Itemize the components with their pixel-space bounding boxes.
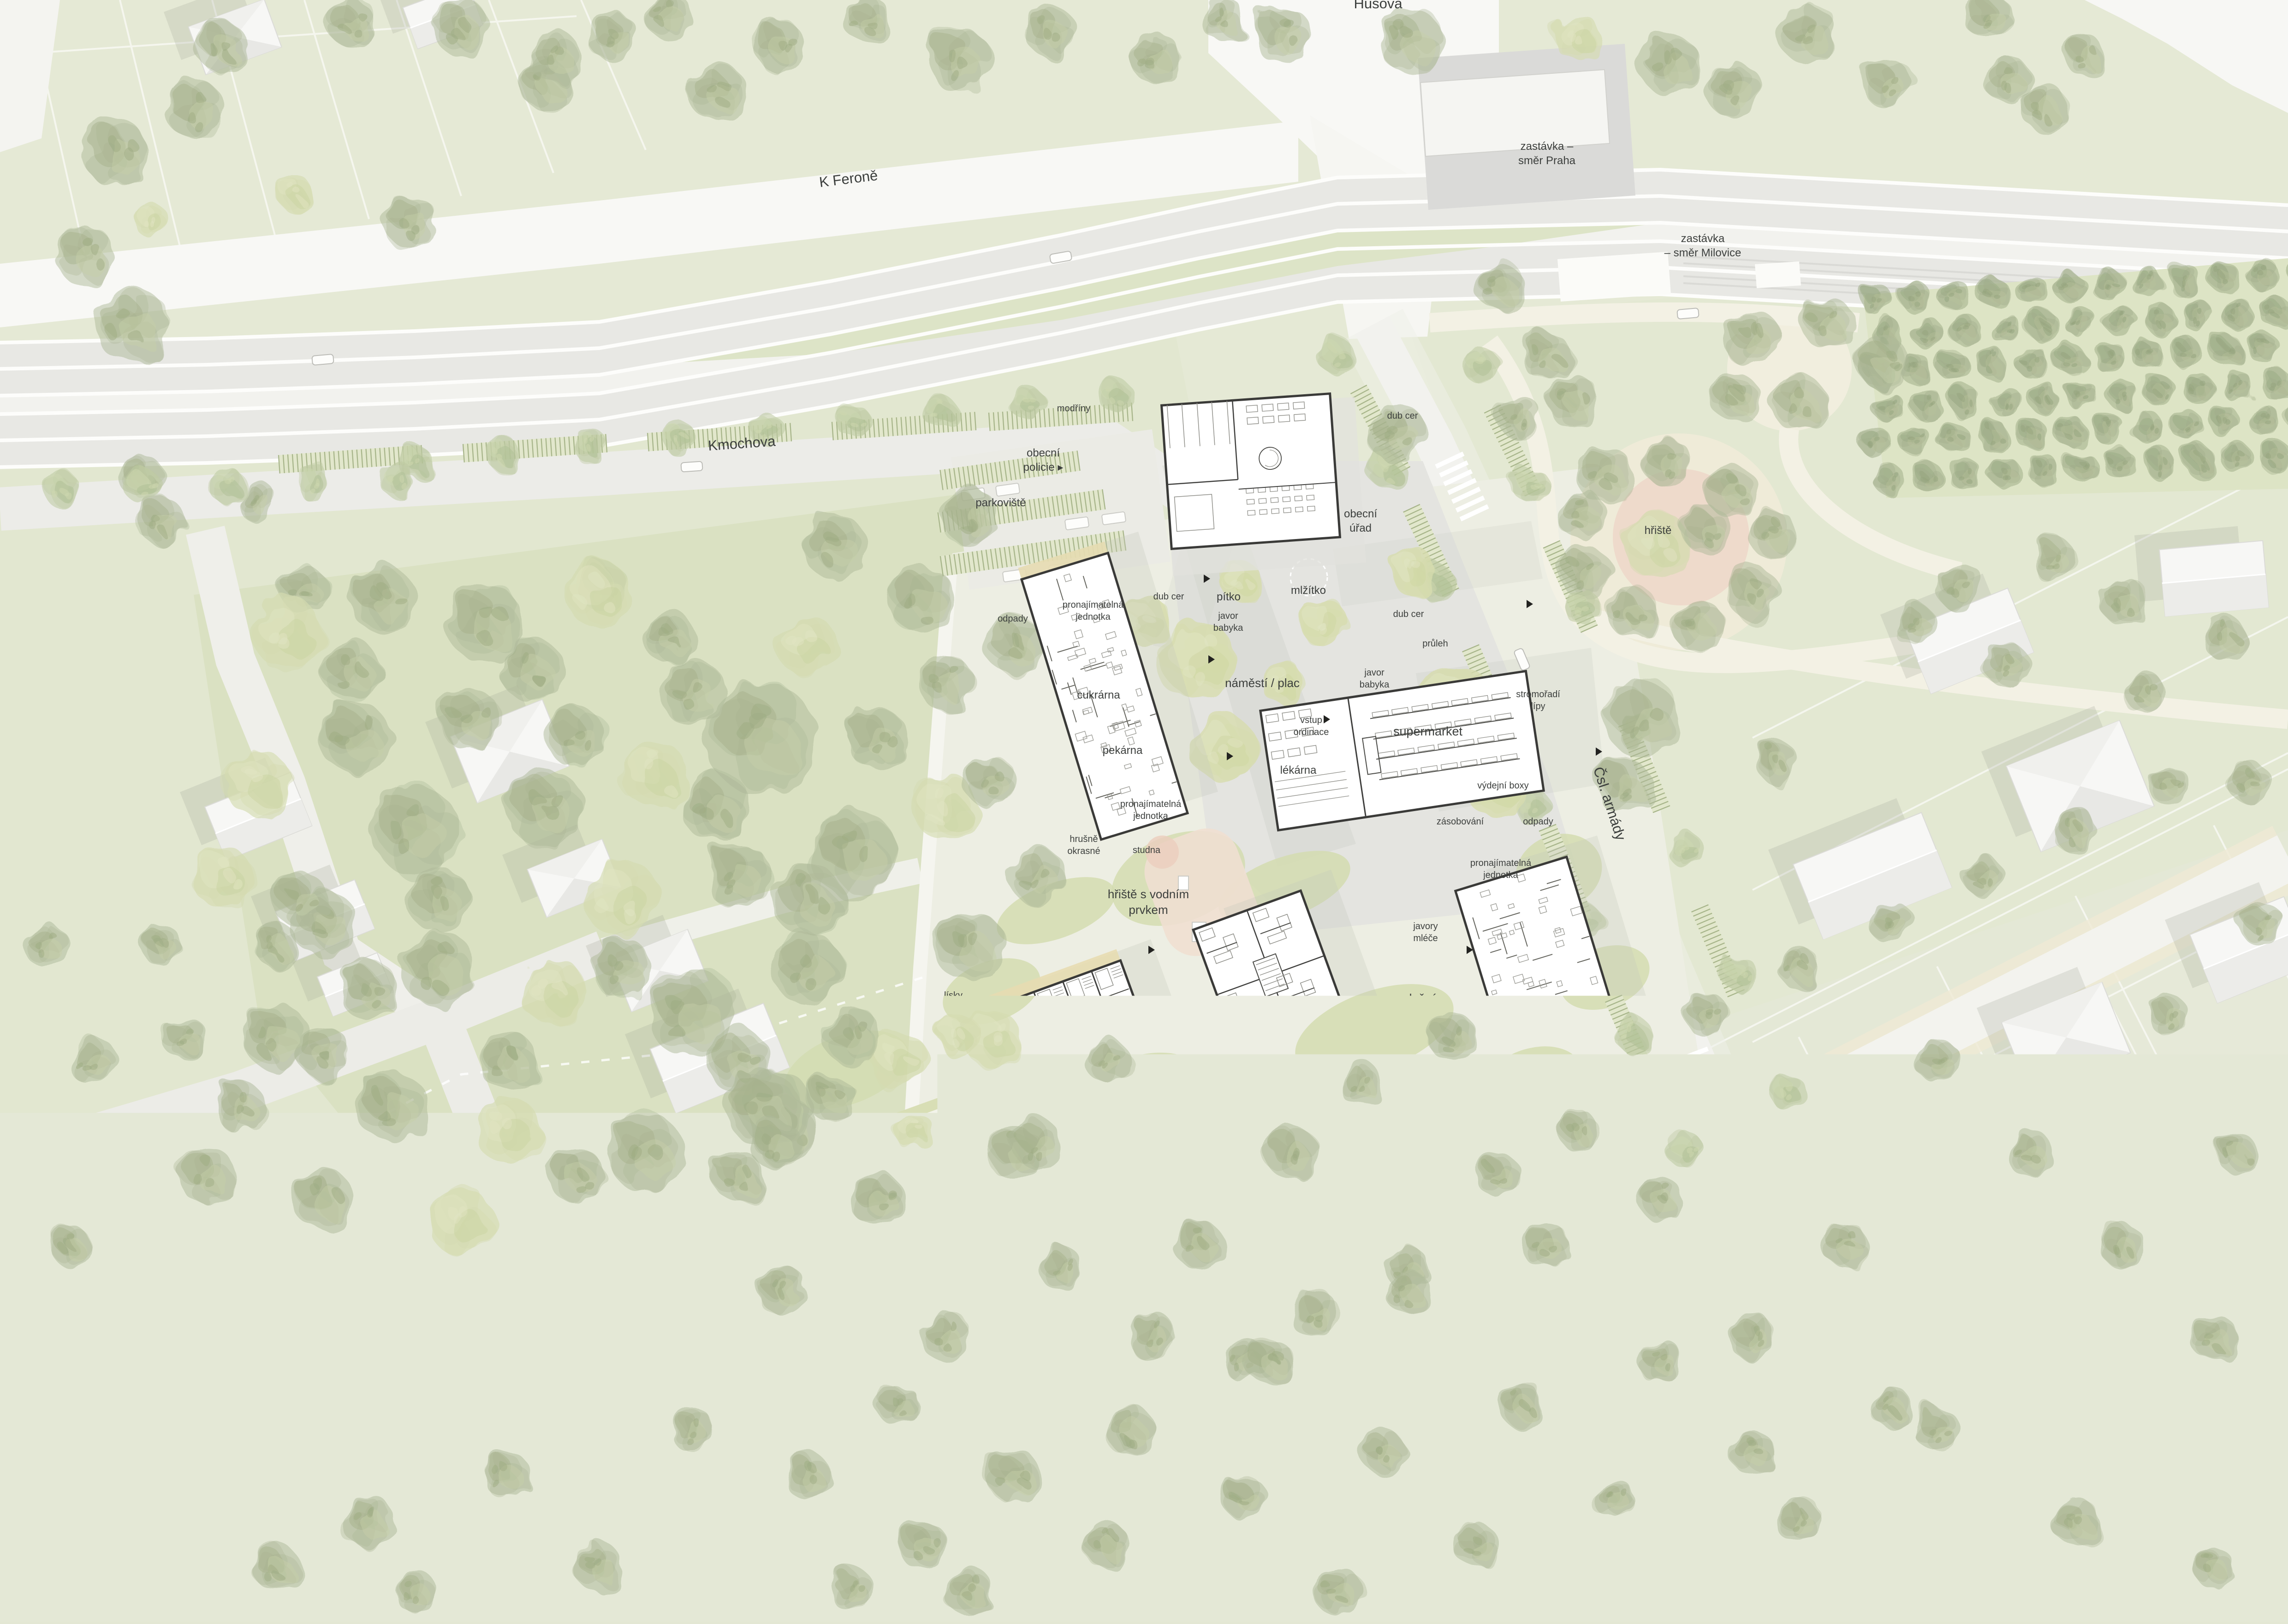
svg-text:jednotka: jednotka	[1555, 1010, 1591, 1020]
svg-text:přírodní porost: přírodní porost	[1361, 1145, 1421, 1155]
svg-text:ořešák: ořešák	[730, 1085, 758, 1095]
svg-text:policie ▸: policie ▸	[1023, 461, 1064, 474]
svg-text:javory: javory	[958, 1136, 983, 1146]
svg-text:pronajímatelná: pronajímatelná	[1120, 799, 1182, 809]
svg-text:studna: studna	[1133, 845, 1161, 855]
svg-text:– směr Milovice: – směr Milovice	[1664, 247, 1741, 259]
svg-text:cukrárna: cukrárna	[1077, 689, 1120, 701]
svg-text:dub cer: dub cer	[1393, 609, 1424, 619]
svg-text:společný: společný	[1390, 991, 1438, 1005]
svg-text:modříny: modříny	[1057, 403, 1090, 414]
svg-text:hřiště s vodním: hřiště s vodním	[1108, 887, 1189, 901]
svg-text:směr Praha: směr Praha	[1518, 154, 1576, 167]
svg-text:babyka: babyka	[1360, 680, 1390, 690]
svg-text:babyky / jasany: babyky / jasany	[1308, 1189, 1372, 1199]
svg-text:alej: alej	[1332, 1177, 1347, 1187]
svg-text:alej: alej	[1192, 1052, 1206, 1062]
svg-text:dvůr: dvůr	[1402, 1007, 1426, 1021]
svg-text:mléče: mléče	[958, 1148, 983, 1158]
svg-text:Husova: Husova	[1354, 0, 1403, 12]
svg-text:supermarket: supermarket	[1393, 724, 1463, 738]
svg-text:babyka: babyka	[1213, 623, 1243, 633]
svg-text:odpady: odpady	[998, 614, 1028, 624]
svg-text:hrušně: hrušně	[1070, 834, 1098, 844]
svg-text:pronajímatelná: pronajímatelná	[1470, 858, 1532, 868]
svg-text:přírodní porost: přírodní porost	[975, 1352, 1036, 1363]
svg-text:javor: javor	[1218, 611, 1238, 621]
svg-text:babyky / jasany: babyky / jasany	[1167, 1064, 1231, 1074]
svg-text:– biodiverzita: – biodiverzita	[978, 1364, 1033, 1375]
svg-text:jednotka: jednotka	[1075, 612, 1111, 622]
svg-text:výdejní boxy: výdejní boxy	[1477, 781, 1528, 791]
svg-text:javory: javory	[1413, 921, 1438, 931]
svg-text:pronajímatelná: pronajímatelná	[1063, 600, 1124, 610]
svg-text:pítko: pítko	[1217, 591, 1241, 603]
svg-text:dub cer: dub cer	[1153, 592, 1184, 602]
svg-text:obecní: obecní	[1027, 447, 1060, 459]
svg-text:odpady: odpady	[1267, 1195, 1297, 1205]
svg-text:ordinace: ordinace	[1294, 727, 1329, 737]
svg-text:dvůr: dvůr	[966, 1207, 990, 1221]
svg-text:odpady: odpady	[1523, 817, 1553, 827]
svg-text:ptačky: ptačky	[778, 1257, 804, 1267]
svg-text:javor: javor	[1364, 668, 1385, 678]
svg-text:dub cer: dub cer	[1387, 411, 1418, 421]
svg-text:zastávka –: zastávka –	[1521, 140, 1574, 153]
svg-text:parkoviště: parkoviště	[975, 497, 1026, 509]
svg-text:prvkem: prvkem	[1129, 903, 1168, 917]
svg-text:úřad: úřad	[1349, 522, 1372, 534]
svg-text:stromořadí: stromořadí	[1516, 689, 1560, 699]
svg-text:mléče: mléče	[1413, 933, 1438, 943]
svg-text:pekárna: pekárna	[1103, 744, 1143, 757]
svg-text:průleh: průleh	[1422, 639, 1448, 649]
svg-text:pronajímatelná: pronajímatelná	[1543, 998, 1604, 1008]
svg-text:náměstí / plac: náměstí / plac	[1225, 676, 1300, 690]
svg-text:zastávka: zastávka	[1681, 232, 1725, 245]
svg-text:lísky: lísky	[944, 990, 963, 1001]
svg-text:mlžítko: mlžítko	[1291, 584, 1326, 597]
svg-text:společný: společný	[954, 1191, 1002, 1205]
svg-text:lékárna: lékárna	[1280, 764, 1317, 776]
svg-text:lípy: lípy	[1531, 701, 1545, 711]
svg-text:jednotka: jednotka	[1483, 870, 1518, 880]
svg-text:komunitní: komunitní	[919, 1094, 959, 1104]
svg-text:hřiště: hřiště	[1645, 524, 1672, 537]
svg-text:zásobování: zásobování	[1437, 817, 1484, 827]
svg-text:– biodiverzita: – biodiverzita	[1363, 1157, 1418, 1167]
svg-text:jednotka: jednotka	[1133, 811, 1168, 821]
svg-text:zahrádky: zahrádky	[920, 1106, 957, 1116]
svg-text:obecní: obecní	[1344, 508, 1377, 520]
svg-text:okrasné: okrasné	[1067, 846, 1100, 856]
svg-text:jasan: jasan	[1512, 1094, 1534, 1104]
svg-text:vstup: vstup	[1300, 715, 1322, 725]
svg-text:dub cer: dub cer	[1243, 1220, 1274, 1230]
